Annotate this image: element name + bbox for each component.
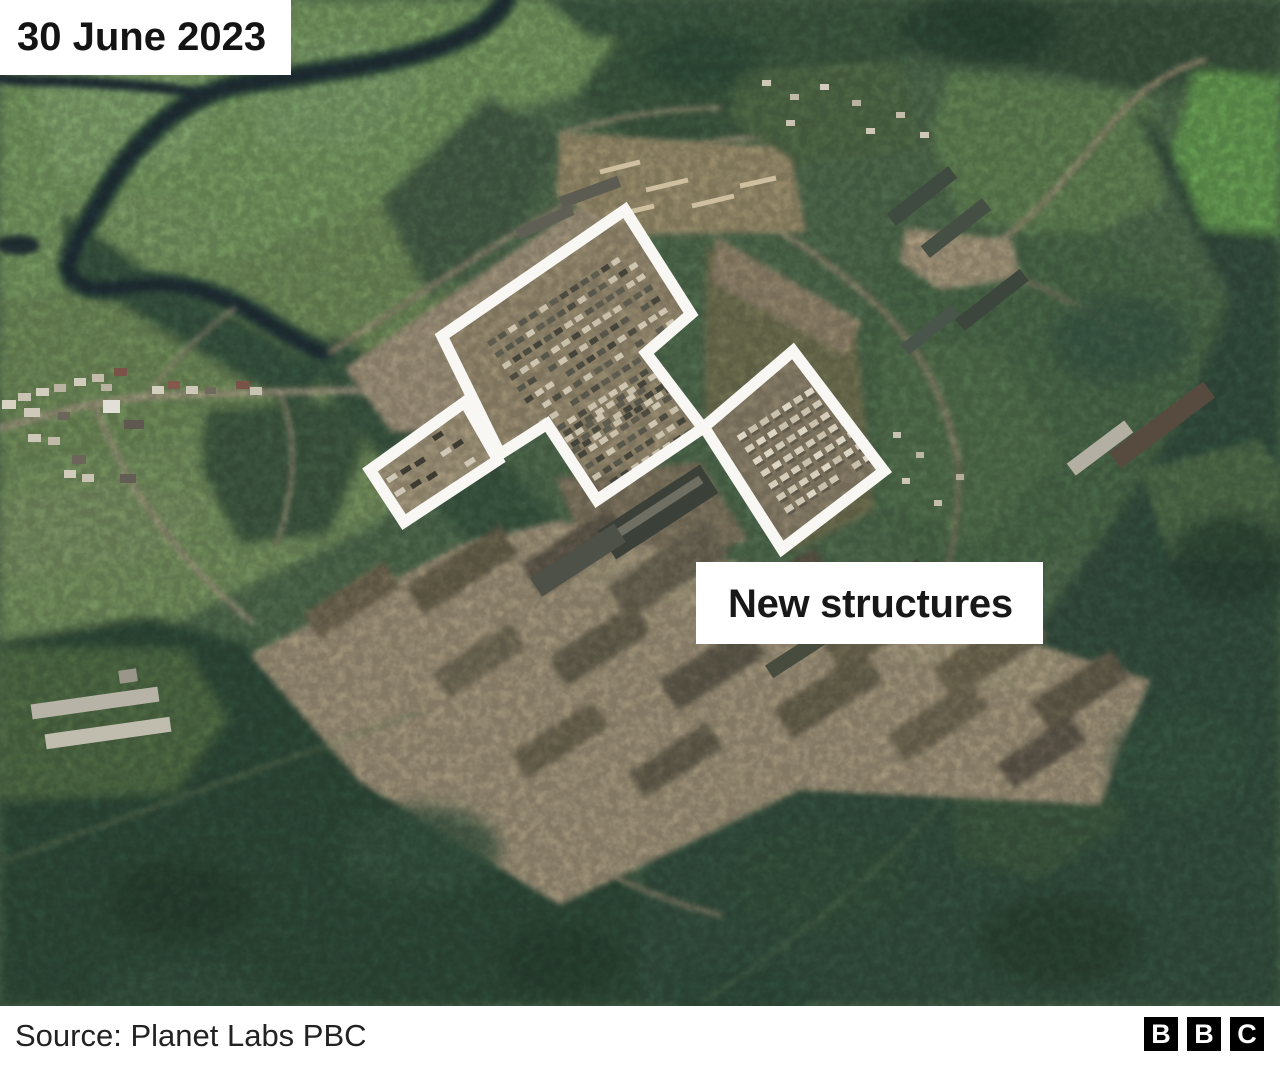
svg-text:B: B (1151, 1019, 1171, 1049)
svg-text:Source: Planet Labs PBC: Source: Planet Labs PBC (15, 1018, 367, 1053)
svg-text:C: C (1237, 1019, 1257, 1049)
svg-text:B: B (1194, 1019, 1214, 1049)
svg-text:New structures: New structures (728, 582, 1013, 626)
svg-text:30 June 2023: 30 June 2023 (17, 15, 266, 59)
